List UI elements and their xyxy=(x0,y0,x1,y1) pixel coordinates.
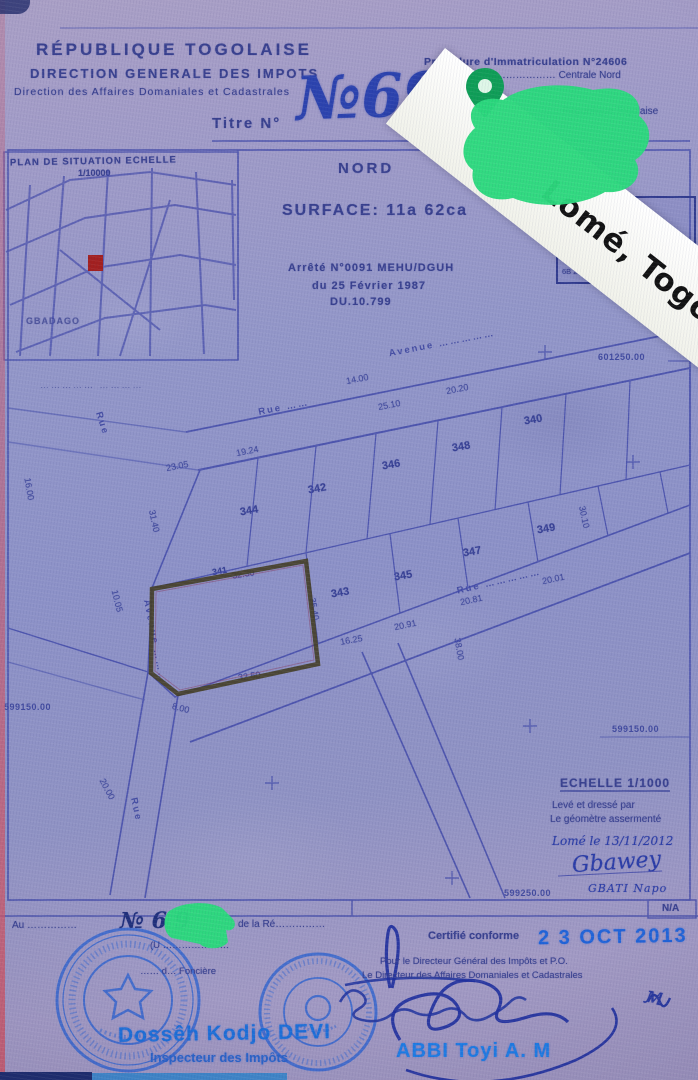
pour-line2: Le Directeur des Affaires Domaniales et … xyxy=(362,970,583,981)
director-name: ABBI Toyi A. M xyxy=(396,1040,551,1063)
pour-line1: Pour le Directeur Général des Impôts et … xyxy=(380,956,568,967)
na-label: N/A xyxy=(662,903,679,914)
inspector-title: Inspecteur des Impôts xyxy=(150,1050,288,1065)
footer-note-line2: …… d… Foncière xyxy=(140,966,216,977)
registration-suffix: de la Ré…………… xyxy=(238,919,325,930)
green-redaction-blob xyxy=(445,80,655,215)
photo-edge-bottom-navy xyxy=(0,1072,92,1080)
photo-edge-left xyxy=(0,0,5,1080)
photo-edge-bottom-cyan xyxy=(92,1073,287,1080)
green-redaction-arrow xyxy=(160,898,240,954)
scanned-land-title-document: RÉPUBLIQUE TOGOLAISE DIRECTION GENERALE … xyxy=(0,0,698,1080)
inspector-name: Dossêh Kodjo DEVI xyxy=(118,1020,331,1048)
registration-prefix: Au …………… xyxy=(12,920,77,931)
date-stamp: 2 3 OCT 2013 xyxy=(538,925,688,951)
certified-label: Certifié conforme xyxy=(428,930,519,942)
